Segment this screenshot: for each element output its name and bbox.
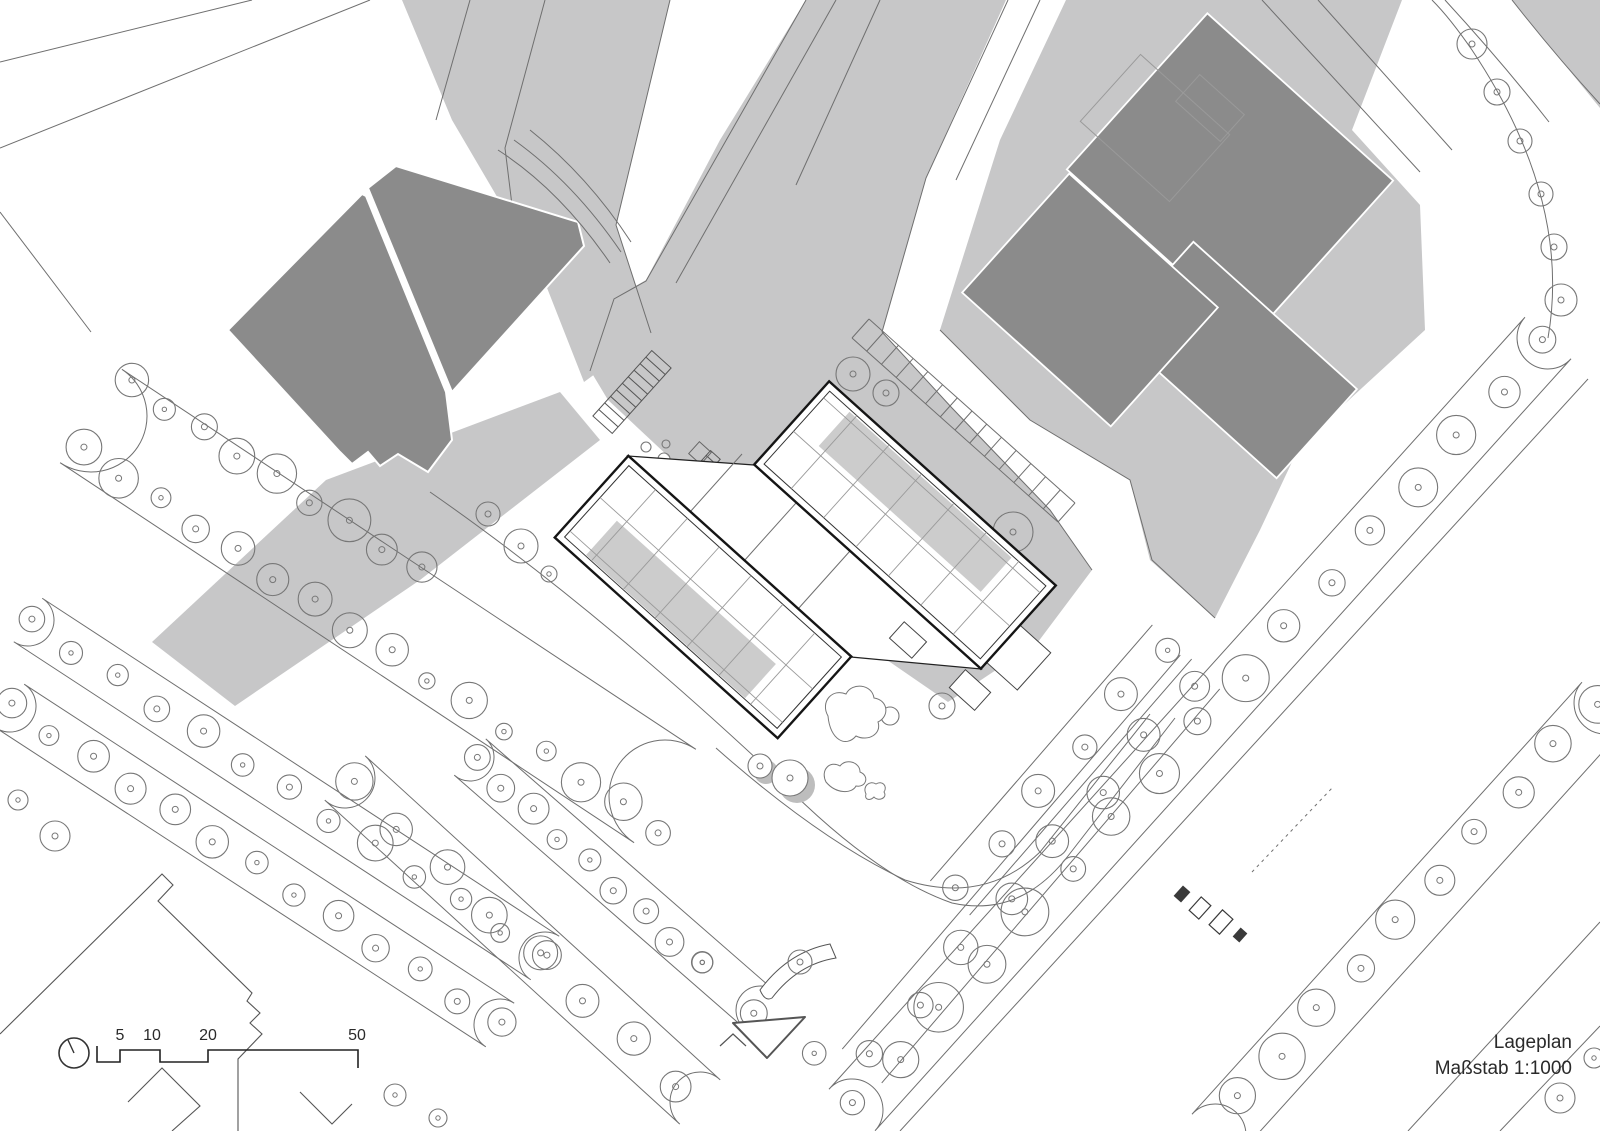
- tree-trunk-icon: [29, 616, 35, 622]
- tree-trunk-icon: [412, 875, 416, 879]
- corner-tree: [1545, 284, 1577, 316]
- tree-trunk-icon: [351, 778, 357, 784]
- tree-row-left-3-tree: [445, 989, 470, 1014]
- tree-trunk-icon: [172, 806, 178, 812]
- tree-row-left-4-tree: [430, 850, 465, 885]
- scale-bar: [97, 1046, 358, 1068]
- tree-row-right-inner-tree: [908, 992, 933, 1017]
- kiosk-structure-rect: [1174, 885, 1191, 902]
- tree-row-block-southeast-tree: [1022, 774, 1055, 807]
- tree-trunk-icon: [1329, 580, 1335, 586]
- tree-trunk-icon: [544, 749, 548, 753]
- tree-trunk-icon: [209, 839, 215, 845]
- tree-row-right-inner-tree: [944, 930, 978, 964]
- tree-trunk-icon: [9, 700, 15, 706]
- shrub-blob-1: [825, 686, 885, 741]
- tree-trunk-icon: [1558, 297, 1564, 303]
- tree-trunk-icon: [538, 950, 544, 956]
- tree-row-right-2-tree: [1462, 819, 1487, 844]
- caret-mark: [720, 1034, 746, 1046]
- tree-row-right-main-tree: [1489, 376, 1520, 407]
- tree-row-right-main-tree: [1529, 326, 1556, 353]
- plaza-tree: [748, 754, 772, 778]
- kiosk-structure-rect: [1189, 897, 1211, 919]
- tree-trunk-icon: [499, 1019, 505, 1025]
- tree-row-left-3-tree: [246, 851, 269, 874]
- tree-trunk-icon: [588, 858, 592, 862]
- tree-row-left-lower-tree: [66, 429, 102, 465]
- tree-row-right-2-tree: [1259, 1033, 1305, 1079]
- north-needle-icon: [68, 1040, 74, 1053]
- tree-row-left-lower-tree: [221, 532, 255, 566]
- tree-row-left-3-tree: [283, 884, 305, 906]
- scale-bar-label: 20: [199, 1027, 217, 1044]
- tree-row-left-3-tree: [115, 773, 146, 804]
- kiosk-structure: [1189, 897, 1211, 919]
- tree-trunk-icon: [445, 864, 451, 870]
- tree-trunk-icon: [336, 913, 342, 919]
- block-west-tree: [541, 566, 557, 582]
- tree-row-right-2-tree: [1376, 900, 1415, 939]
- kiosk-structure-rect: [1233, 928, 1248, 943]
- tree-row-left-upper-tree: [219, 438, 255, 474]
- tree-trunk-icon: [1035, 788, 1041, 794]
- tree-trunk-icon: [1367, 527, 1373, 533]
- tree-trunk-icon: [812, 1051, 816, 1055]
- tree-trunk-icon: [1108, 814, 1114, 820]
- tree-trunk-icon: [466, 697, 472, 703]
- tree-trunk-icon: [347, 627, 353, 633]
- corner-tree: [1484, 79, 1510, 105]
- tree-row-left-2-tree: [317, 809, 340, 832]
- tree-trunk-icon: [154, 706, 160, 712]
- block-west-tree: [504, 529, 538, 563]
- tree-row-left-3-tree: [323, 900, 354, 931]
- tree-trunk-icon: [1550, 741, 1556, 747]
- tree-trunk-icon: [1070, 866, 1076, 872]
- tree-trunk-icon: [547, 572, 551, 576]
- tree-trunk-icon: [1118, 691, 1124, 697]
- drawing-title: Lageplan: [1435, 1030, 1572, 1056]
- tree-row-block-southeast-tree: [1105, 678, 1138, 711]
- tree-trunk-icon: [1437, 877, 1443, 883]
- tree-trunk-icon: [1501, 389, 1507, 395]
- tree-trunk-icon: [1469, 41, 1475, 47]
- tree-row-right-main-tree: [1319, 570, 1345, 596]
- tree-trunk-icon: [425, 679, 429, 683]
- tree-trunk-icon: [1194, 718, 1200, 724]
- tree-trunk-icon: [751, 1010, 757, 1016]
- tree-trunk-icon: [1392, 917, 1398, 923]
- tree-trunk-icon: [389, 647, 395, 653]
- parking-row-line: [1058, 503, 1075, 522]
- tree-row-left-lower-tree: [496, 723, 513, 740]
- tree-row-left-2-tree: [187, 715, 220, 748]
- tree-trunk-icon: [631, 1036, 637, 1042]
- tree-row-left-4-tree: [472, 897, 508, 933]
- tree-row-right-main-tree: [914, 982, 964, 1032]
- tree-trunk-icon: [201, 728, 207, 734]
- tree-trunk-icon: [459, 897, 463, 901]
- tree-row-left-2-tree: [231, 754, 254, 777]
- tree-row-left-lower-tree: [536, 741, 556, 761]
- tree-trunk-icon: [1100, 790, 1106, 796]
- tree-row-bottom-center-ext-tree: [692, 952, 713, 973]
- tree-trunk-icon: [984, 961, 990, 967]
- tree-row-left-upper-tree: [257, 454, 296, 493]
- tree-trunk-icon: [1453, 432, 1459, 438]
- corner-tree: [1457, 29, 1487, 59]
- tree-row-bottom-center-tree: [600, 877, 626, 903]
- tree-trunk-icon: [16, 798, 20, 802]
- corner-tree-bottomright: [1545, 1083, 1575, 1113]
- neighbor-building-outline: [0, 874, 262, 1131]
- tree-row-right-main-tree: [1355, 516, 1384, 545]
- title-block: Lageplan Maßstab 1:1000: [1435, 1030, 1572, 1082]
- tree-row-left-3-tree: [196, 826, 228, 858]
- neighbor-building-zigzag-1: [128, 1068, 200, 1131]
- tree-row-left-upper-tree: [153, 398, 175, 420]
- tree-trunk-icon: [91, 753, 97, 759]
- tree-trunk-icon: [1592, 1056, 1596, 1060]
- planting-island-curved: [760, 944, 836, 999]
- tree-trunk-icon: [700, 960, 704, 964]
- kiosk-structure: [1209, 910, 1233, 934]
- tree-trunk-icon: [69, 651, 73, 655]
- tree-row-right-2-tree: [1503, 777, 1534, 808]
- tree-trunk-icon: [958, 944, 964, 950]
- tree-row-left-2-tree: [403, 866, 425, 888]
- tree-trunk-icon: [47, 733, 51, 737]
- tree-row-right-main-tree: [1268, 610, 1300, 642]
- tree-row-bottom-center-tree: [464, 745, 490, 771]
- tree-row-right-inner-tree: [1180, 671, 1210, 701]
- corner-line-bottomright-1: [1408, 922, 1600, 1131]
- plaza-tree: [772, 760, 808, 796]
- tree-trunk-icon: [418, 967, 422, 971]
- tree-trunk-icon: [116, 475, 122, 481]
- scale-bar-label: 50: [348, 1027, 366, 1044]
- tree-row-left-upper-tree: [115, 363, 148, 396]
- tree-trunk-icon: [1516, 789, 1522, 795]
- tree-trunk-icon: [159, 496, 163, 500]
- corner-tree: [1529, 182, 1553, 206]
- tree-row-right-main-tree: [968, 945, 1006, 983]
- traffic-island-triangle: [733, 1017, 805, 1058]
- tree-row-right-main-tree: [1184, 708, 1211, 735]
- tree-trunk-icon: [610, 888, 616, 894]
- scale-bar-label: 5: [116, 1027, 125, 1044]
- tree-trunk-icon: [52, 833, 58, 839]
- neighbor-building-zigzag-2: [300, 1092, 352, 1124]
- tree-trunk-icon: [1415, 484, 1421, 490]
- tree-row-right-main-tree: [1001, 888, 1049, 936]
- corner-tree: [1508, 129, 1532, 153]
- tree-trunk-icon: [620, 799, 626, 805]
- tree-trunk-icon: [898, 1057, 904, 1063]
- tree-row-left-4-tree: [660, 1071, 691, 1102]
- tree-trunk-icon: [578, 779, 584, 785]
- tree-trunk-icon: [498, 931, 502, 935]
- tree-trunk-icon: [655, 830, 661, 836]
- tree-row-left-lower-tree: [182, 515, 209, 542]
- plaza-bollard: [641, 442, 651, 452]
- tree-row-left-2-tree: [144, 696, 170, 722]
- tree-row-right-2-tree: [1579, 686, 1600, 724]
- tree-trunk-icon: [454, 998, 460, 1004]
- tree-row-left-4-tree: [524, 936, 558, 970]
- tree-trunk-icon: [292, 893, 296, 897]
- tree-row-left-lower-tree: [605, 783, 642, 820]
- avenue-strip-left-4: [325, 756, 720, 1124]
- edge-tree: [429, 1109, 447, 1127]
- tree-trunk-icon: [1082, 744, 1088, 750]
- tree-trunk-icon: [1141, 732, 1147, 738]
- tree-row-left-lower-tree: [419, 673, 435, 689]
- shrub-blob-3: [865, 783, 885, 800]
- tree-trunk-icon: [866, 1051, 872, 1057]
- tree-row-block-southeast-tree: [1156, 638, 1180, 662]
- shrub-blob-2: [824, 762, 866, 792]
- tree-row-left-3-tree: [362, 934, 389, 961]
- tree-trunk-icon: [1358, 965, 1364, 971]
- tree-row-bottom-center-tree: [518, 793, 549, 824]
- tree-row-left-lower-tree: [561, 763, 600, 802]
- kiosk-structure: [1233, 928, 1248, 943]
- dotted-boundary: [1252, 786, 1334, 872]
- tree-trunk-icon: [1313, 1005, 1319, 1011]
- tree-row-left-3-tree: [408, 957, 432, 981]
- tree-trunk-icon: [372, 840, 378, 846]
- tree-row-left-lower-tree: [451, 682, 487, 718]
- tree-row-right-inner-tree: [1087, 776, 1120, 809]
- tree-trunk-icon: [667, 939, 673, 945]
- tree-row-left-2-tree: [450, 888, 471, 909]
- tree-row-bottom-center-tree: [579, 849, 601, 871]
- tree-row-right-main-tree: [1437, 415, 1476, 454]
- tree-row-left-3-tree: [160, 794, 191, 825]
- kiosk-structure: [1174, 885, 1191, 902]
- tree-trunk-icon: [255, 860, 259, 864]
- tree-trunk-icon: [498, 785, 504, 791]
- tree-row-bottom-center-ext-tree: [802, 1042, 826, 1066]
- tree-trunk-icon: [235, 545, 241, 551]
- tree-row-bottom-center-tree: [547, 830, 567, 850]
- tree-row-right-main-tree: [883, 1042, 919, 1078]
- tree-row-right-2-tree: [1219, 1078, 1255, 1114]
- tree-trunk-icon: [393, 1093, 397, 1097]
- tree-row-left-2-tree: [277, 775, 301, 799]
- tree-row-right-main-tree: [1399, 468, 1438, 507]
- tree-trunk-icon: [555, 837, 559, 841]
- tree-trunk-icon: [128, 786, 134, 792]
- tree-row-bottom-center-tree: [487, 774, 515, 802]
- tree-row-right-main-tree: [1222, 655, 1269, 702]
- edge-tree: [384, 1084, 406, 1106]
- drawing-scale: Maßstab 1:1000: [1435, 1056, 1572, 1082]
- tree-row-left-4-tree: [566, 984, 599, 1017]
- tree-trunk-icon: [326, 819, 330, 823]
- tree-row-right-2-tree: [1425, 865, 1455, 895]
- parking-row-line: [1014, 464, 1031, 483]
- tree-row-right-2-tree: [1535, 725, 1571, 761]
- property-line-topleft-2: [0, 0, 370, 148]
- tree-trunk-icon: [1234, 1093, 1240, 1099]
- edge-tree: [8, 790, 28, 810]
- tree-trunk-icon: [373, 945, 379, 951]
- tree-row-bottom-center-tree: [655, 928, 684, 957]
- tree-trunk-icon: [1539, 337, 1545, 343]
- tree-row-right-2-tree: [1298, 989, 1335, 1026]
- tree-trunk-icon: [518, 543, 524, 549]
- tree-trunk-icon: [193, 526, 199, 532]
- tree-row-left-3-tree: [488, 1008, 516, 1036]
- site-plan-canvas: 5102050: [0, 0, 1600, 1131]
- tree-trunk-icon: [1156, 771, 1162, 777]
- tree-trunk-icon: [1281, 623, 1287, 629]
- tree-trunk-icon: [531, 806, 537, 812]
- tree-trunk-icon: [474, 754, 480, 760]
- property-line-topleft-1: [0, 0, 252, 62]
- parking-row-line: [1029, 477, 1046, 496]
- avenue-corner-curve-topright-1: [1432, 0, 1553, 338]
- kiosk-structure-rect: [1209, 910, 1233, 934]
- tree-row-left-upper-tree: [191, 414, 217, 440]
- tree-row-left-3-tree: [39, 726, 59, 746]
- tree-trunk-icon: [286, 784, 292, 790]
- tree-trunk-icon: [1557, 1095, 1563, 1101]
- tree-trunk-icon: [849, 1100, 855, 1106]
- tree-trunk-icon: [579, 998, 585, 1004]
- tree-trunk-icon: [240, 763, 244, 767]
- tree-trunk-icon: [544, 952, 550, 958]
- tree-trunk-icon: [116, 673, 120, 677]
- scale-bar-label: 10: [143, 1027, 161, 1044]
- tree-trunk-icon: [1165, 648, 1169, 652]
- tree-row-block-southeast-tree: [1073, 735, 1097, 759]
- tree-row-right-2-tree: [1347, 955, 1374, 982]
- tree-row-right-main-tree: [840, 1091, 864, 1115]
- avenue-strip-bottom-center: [454, 739, 776, 1028]
- tree-row-left-4-tree: [336, 763, 373, 800]
- edge-tree: [40, 821, 70, 851]
- tree-trunk-icon: [936, 1004, 942, 1010]
- tree-row-left-lower-tree: [151, 488, 171, 508]
- tree-row-bottom-center-tree: [634, 899, 659, 924]
- tree-trunk-icon: [201, 424, 207, 430]
- tree-trunk-icon: [502, 729, 506, 733]
- avenue-corner-line: [0, 212, 91, 332]
- tree-row-block-southeast-tree: [989, 831, 1015, 857]
- tree-trunk-icon: [999, 841, 1005, 847]
- tree-row-right-inner-tree: [1127, 718, 1160, 751]
- block-corner-curve-inner: [716, 714, 1150, 888]
- tree-trunk-icon: [162, 407, 166, 411]
- tree-row-left-4-tree: [617, 1022, 650, 1055]
- tree-row-left-2-tree: [19, 606, 45, 632]
- tree-trunk-icon: [234, 453, 240, 459]
- tree-trunk-icon: [81, 444, 87, 450]
- corner-tree: [1541, 234, 1567, 260]
- tree-trunk-icon: [1243, 675, 1249, 681]
- tree-trunk-icon: [1279, 1053, 1285, 1059]
- tree-trunk-icon: [917, 1002, 923, 1008]
- tree-trunk-icon: [436, 1116, 440, 1120]
- tree-row-left-2-tree: [107, 664, 128, 685]
- tree-trunk-icon: [939, 703, 945, 709]
- tree-trunk-icon: [1551, 244, 1557, 250]
- tree-trunk-icon: [1471, 829, 1477, 835]
- tree-row-left-2-tree: [59, 641, 82, 664]
- site-plan-page: 5102050 Lageplan Maßstab 1:1000: [0, 0, 1600, 1131]
- tree-trunk-icon: [1595, 701, 1600, 707]
- tree-row-left-lower-tree: [376, 634, 408, 666]
- tree-trunk-icon: [643, 908, 649, 914]
- tree-row-left-lower-tree: [646, 821, 671, 846]
- tree-trunk-icon: [486, 912, 492, 918]
- parking-row-line: [1043, 490, 1060, 509]
- tree-row-left-3-tree: [78, 740, 110, 772]
- tree-row-left-3-tree: [0, 688, 27, 718]
